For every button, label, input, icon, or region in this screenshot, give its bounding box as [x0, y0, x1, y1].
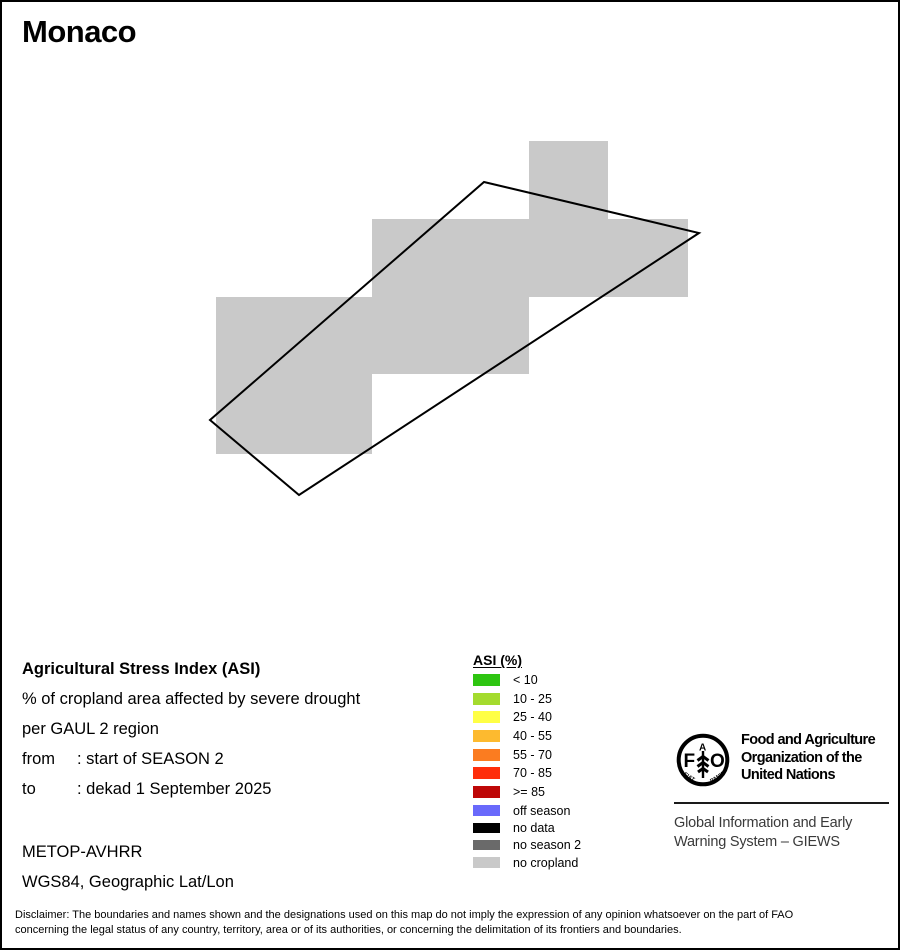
legend-status-row: no cropland: [473, 854, 581, 871]
legend-status-row: no data: [473, 819, 581, 836]
legend-color-swatch: [473, 749, 500, 761]
legend-class-row: 70 - 85: [473, 764, 552, 783]
legend-color-swatch: [473, 786, 500, 798]
no-cropland-pixel-block: [216, 374, 372, 454]
legend-color-swatch: [473, 823, 500, 834]
asi-subtitle-line2: per GAUL 2 region: [22, 714, 360, 744]
fao-asi-map-page: Monaco Agricultural Stress Index (ASI) %…: [0, 0, 900, 950]
fao-separator-line: [674, 802, 889, 804]
legend-color-swatch: [473, 674, 500, 686]
legend-title: ASI (%): [473, 652, 522, 668]
legend-status-label: no season 2: [513, 838, 581, 852]
legend-class-row: >= 85: [473, 783, 552, 802]
fao-org-name-line1: Food and Agriculture: [741, 732, 875, 750]
asi-subtitle-line1: % of cropland area affected by severe dr…: [22, 684, 360, 714]
giews-label: Global Information and Early Warning Sys…: [674, 814, 852, 852]
period-from-label: from: [22, 744, 77, 774]
no-cropland-pixel-block: [372, 219, 688, 297]
disclaimer-line2: concerning the legal status of any count…: [15, 923, 885, 938]
legend-status-label: no data: [513, 821, 555, 835]
legend-class-row: 25 - 40: [473, 708, 552, 727]
period-to-line: to: dekad 1 September 2025: [22, 774, 360, 804]
legend-asi-classes: < 10 10 - 25 25 - 40 40 - 55 55 - 70 70 …: [473, 671, 552, 801]
projection-name: WGS84, Geographic Lat/Lon: [22, 867, 234, 897]
fao-org-name: Food and Agriculture Organization of the…: [741, 732, 875, 785]
no-cropland-pixel-block: [529, 141, 608, 219]
legend-class-row: 40 - 55: [473, 727, 552, 746]
legend-color-swatch: [473, 711, 500, 723]
legend-class-row: 10 - 25: [473, 690, 552, 709]
fao-org-name-line3: United Nations: [741, 767, 875, 785]
technical-info-block: METOP-AVHRR WGS84, Geographic Lat/Lon: [22, 837, 234, 897]
legend-status-classes: off season no data no season 2 no cropla…: [473, 802, 581, 871]
legend-color-swatch: [473, 857, 500, 868]
sensor-name: METOP-AVHRR: [22, 837, 234, 867]
legend-color-swatch: [473, 805, 500, 816]
period-to-value: : dekad 1 September 2025: [77, 780, 271, 798]
giews-line1: Global Information and Early: [674, 814, 852, 833]
no-cropland-pixel-block: [216, 297, 529, 374]
legend-class-row: < 10: [473, 671, 552, 690]
period-to-label: to: [22, 774, 77, 804]
fao-logo-letter-f: F: [684, 751, 696, 772]
legend-class-label: 70 - 85: [513, 766, 552, 780]
legend-class-label: 40 - 55: [513, 729, 552, 743]
fao-logo: F O A FIAT PANIS: [676, 733, 730, 787]
map-canvas: [2, 2, 900, 950]
legend-color-swatch: [473, 840, 500, 851]
legend-status-row: off season: [473, 802, 581, 819]
disclaimer-text: Disclaimer: The boundaries and names sho…: [15, 908, 885, 938]
asi-heading: Agricultural Stress Index (ASI): [22, 654, 360, 684]
fao-org-name-line2: Organization of the: [741, 750, 875, 768]
asi-description-block: Agricultural Stress Index (ASI) % of cro…: [22, 654, 360, 804]
period-from-value: : start of SEASON 2: [77, 750, 224, 768]
legend-class-label: < 10: [513, 673, 538, 687]
legend-color-swatch: [473, 693, 500, 705]
legend-class-label: 25 - 40: [513, 710, 552, 724]
legend-class-row: 55 - 70: [473, 745, 552, 764]
fao-logo-letter-o: O: [710, 751, 725, 772]
legend-status-row: no season 2: [473, 837, 581, 854]
legend-color-swatch: [473, 767, 500, 779]
disclaimer-line1: Disclaimer: The boundaries and names sho…: [15, 908, 885, 923]
giews-line2: Warning System – GIEWS: [674, 833, 852, 852]
legend-color-swatch: [473, 730, 500, 742]
legend-class-label: 55 - 70: [513, 748, 552, 762]
legend-status-label: off season: [513, 804, 570, 818]
legend-status-label: no cropland: [513, 856, 578, 870]
legend-class-label: 10 - 25: [513, 692, 552, 706]
legend-class-label: >= 85: [513, 785, 545, 799]
period-from-line: from: start of SEASON 2: [22, 744, 360, 774]
